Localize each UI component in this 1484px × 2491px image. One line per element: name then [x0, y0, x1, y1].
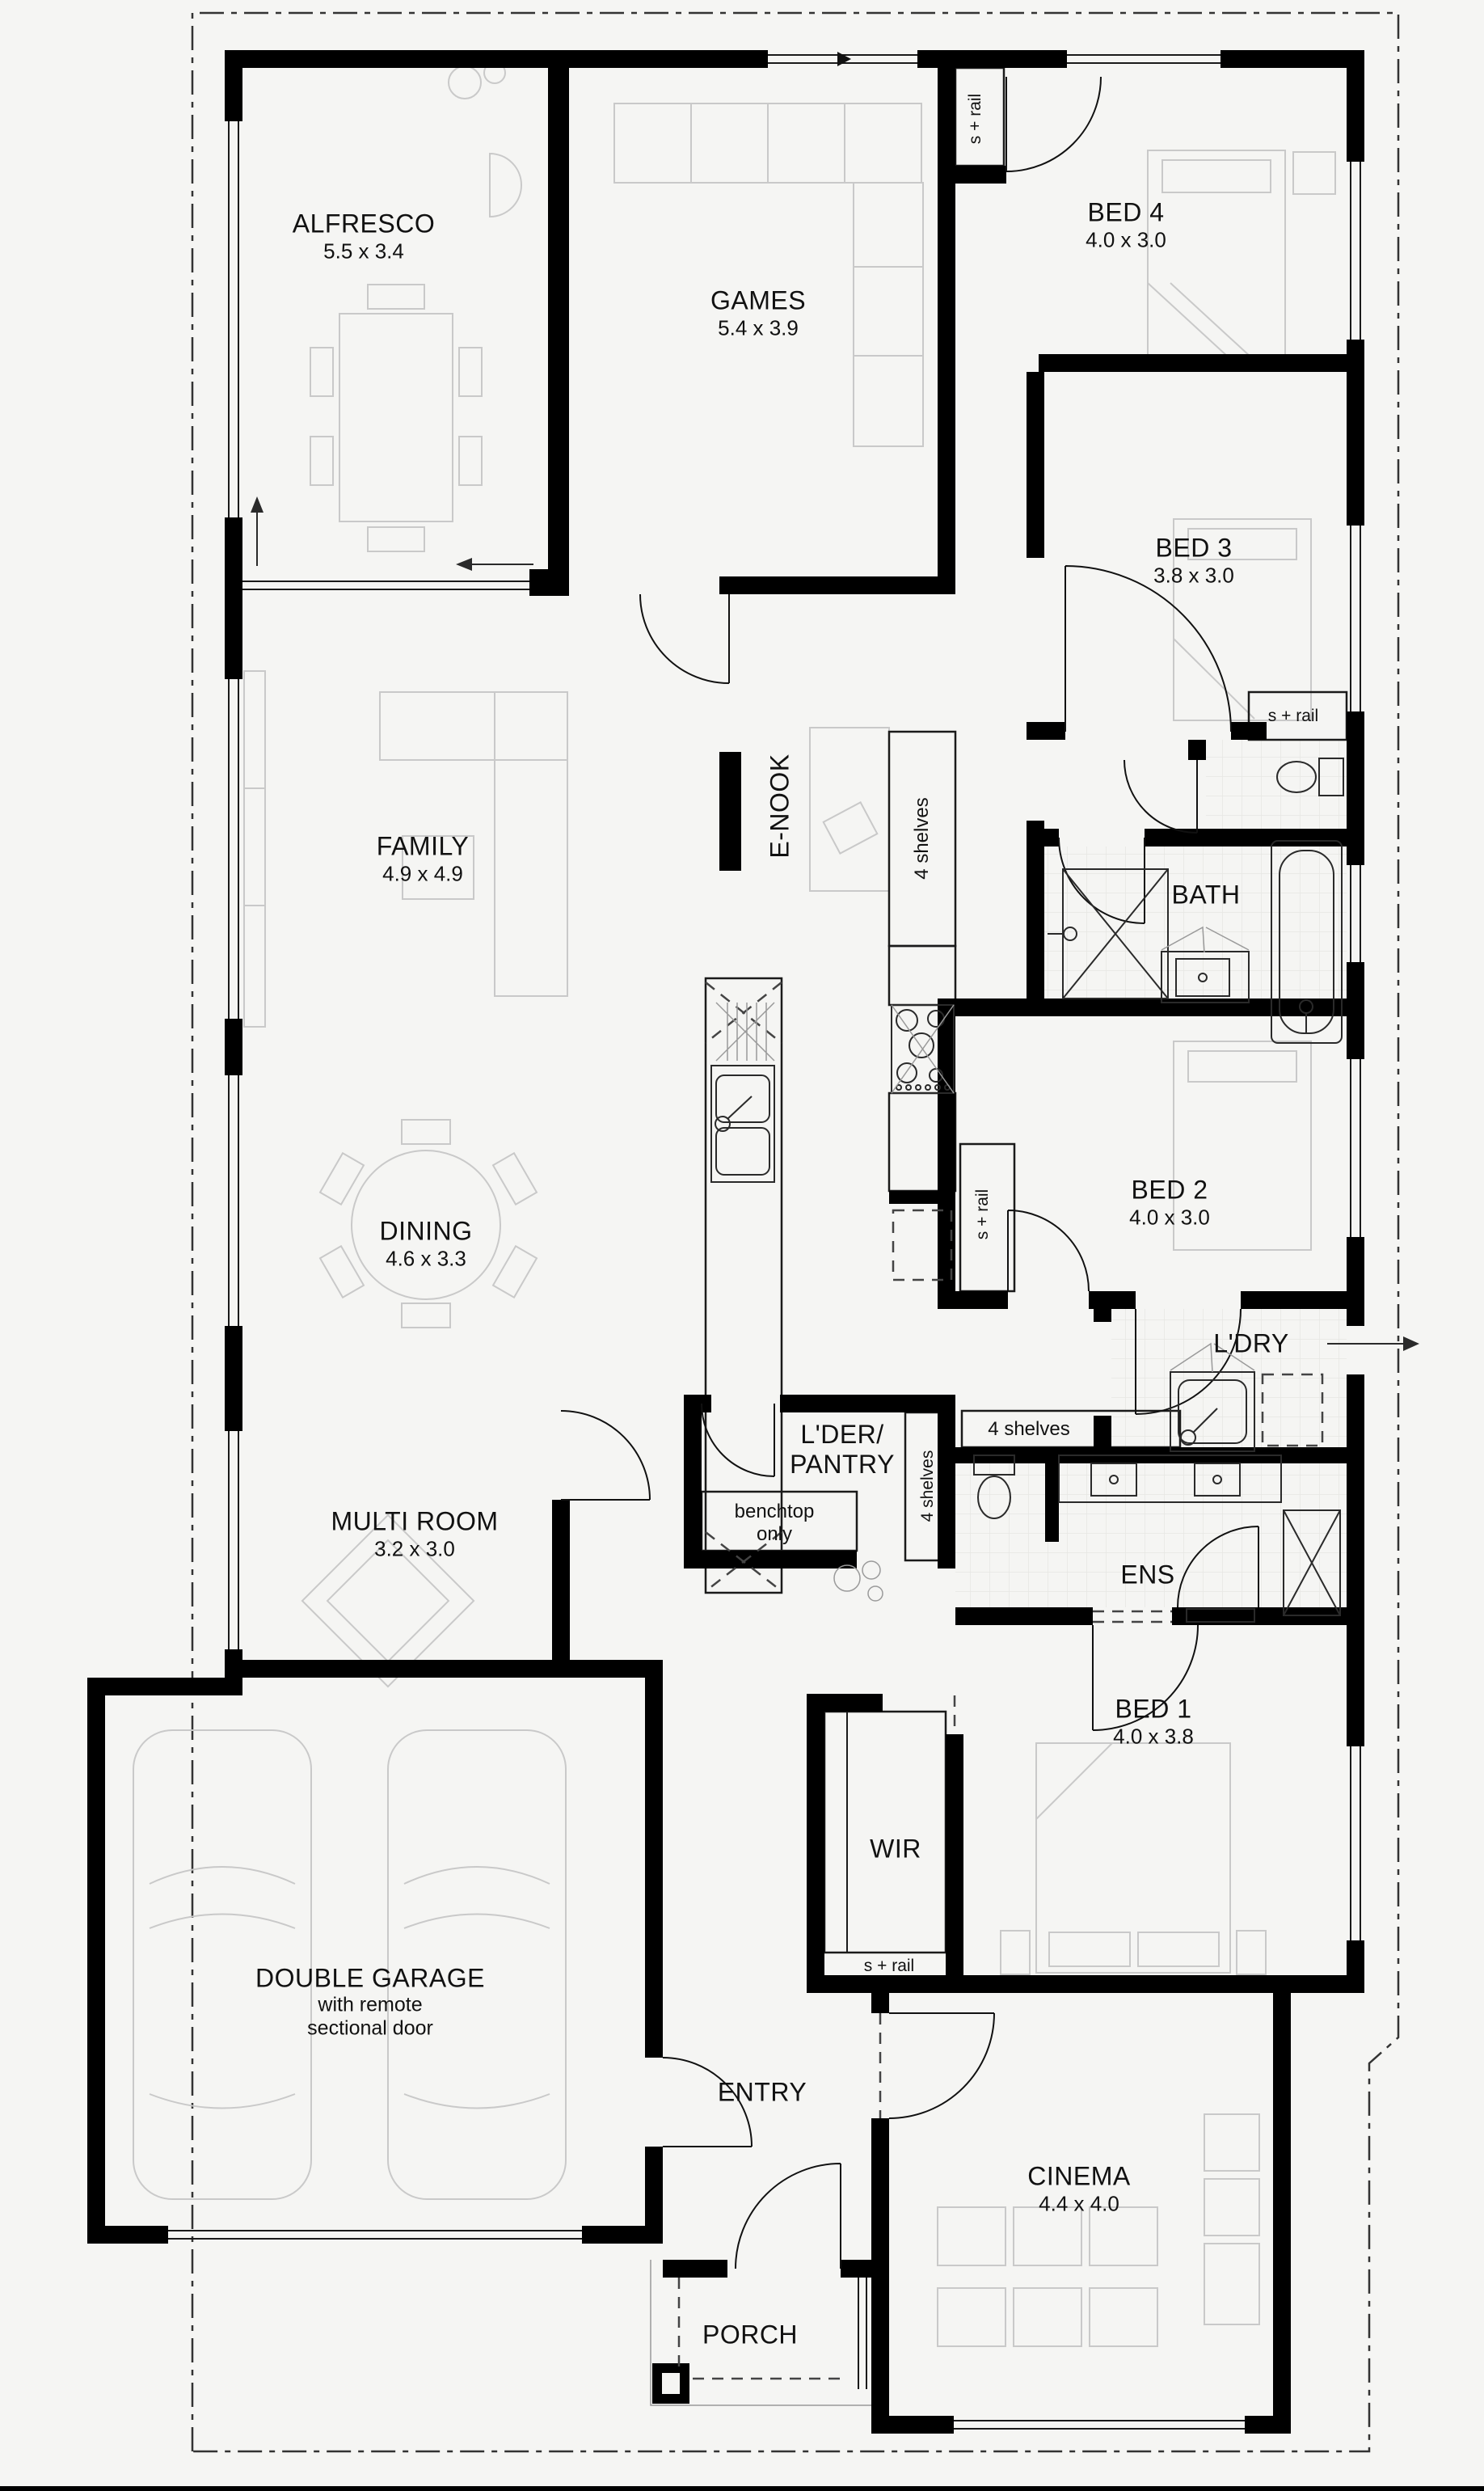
- annotation-bed2-robe: s + rail: [973, 1189, 993, 1239]
- room-label-bath: BATH: [1172, 880, 1241, 910]
- room-name: MULTI ROOM: [331, 1506, 498, 1536]
- annotation-bed4-robe: s + rail: [966, 94, 985, 144]
- room-label-bed1: BED 1 4.0 x 3.8: [1113, 1694, 1194, 1748]
- room-label-family: FAMILY 4.9 x 4.9: [377, 831, 469, 885]
- room-name-line2: PANTRY: [790, 1450, 895, 1480]
- room-label-bed4: BED 4 4.0 x 3.0: [1086, 197, 1166, 251]
- room-label-wir: WIR: [870, 1834, 921, 1864]
- room-name: E-NOOK: [765, 754, 795, 858]
- room-dims: 5.5 x 3.4: [293, 239, 435, 263]
- annotation-bed3-robe: s + rail: [1268, 707, 1318, 726]
- room-name: BED 3: [1153, 533, 1234, 563]
- room-dims: 3.2 x 3.0: [331, 1536, 498, 1560]
- room-label-alfresco: ALFRESCO 5.5 x 3.4: [293, 209, 435, 263]
- room-name: BED 1: [1113, 1694, 1194, 1724]
- annotation-linen-shelves: 4 shelves: [988, 1418, 1069, 1441]
- room-dims: 4.0 x 3.0: [1086, 227, 1166, 251]
- room-name: BED 4: [1086, 197, 1166, 227]
- dashed-lines: [679, 982, 1322, 2379]
- room-note-2: sectional door: [255, 2017, 485, 2041]
- doors: [561, 77, 1258, 2269]
- room-name: BED 2: [1129, 1175, 1210, 1205]
- floor-plan: ALFRESCO 5.5 x 3.4 GAMES 5.4 x 3.9 BED 4…: [0, 0, 1484, 2491]
- room-label-pantry: L'DER/ PANTRY: [790, 1420, 895, 1480]
- room-dims: 3.8 x 3.0: [1153, 563, 1234, 587]
- room-name: DINING: [380, 1216, 473, 1246]
- room-name: WIR: [870, 1834, 921, 1864]
- room-name: ENS: [1120, 1560, 1174, 1590]
- room-label-bed3: BED 3 3.8 x 3.0: [1153, 533, 1234, 587]
- room-dims: 5.4 x 3.9: [710, 315, 806, 340]
- benchtop-line2: only: [735, 1523, 815, 1546]
- room-name: FAMILY: [377, 831, 469, 861]
- annotation-benchtop: benchtop only: [735, 1501, 815, 1546]
- annotation-hall-shelves: 4 shelves: [911, 797, 934, 879]
- annotation-pantry-shelves: 4 shelves: [918, 1450, 938, 1522]
- room-name-line1: L'DER/: [790, 1420, 895, 1450]
- room-name: PORCH: [702, 2320, 798, 2350]
- room-label-bed2: BED 2 4.0 x 3.0: [1129, 1175, 1210, 1229]
- room-label-games: GAMES 5.4 x 3.9: [710, 285, 806, 340]
- room-label-multi: MULTI ROOM 3.2 x 3.0: [331, 1506, 498, 1560]
- room-label-cinema: CINEMA 4.4 x 4.0: [1027, 2161, 1130, 2215]
- room-label-dining: DINING 4.6 x 3.3: [380, 1216, 473, 1270]
- room-name: CINEMA: [1027, 2161, 1130, 2191]
- room-label-entry: ENTRY: [718, 2077, 807, 2107]
- room-dims: 4.0 x 3.8: [1113, 1724, 1194, 1748]
- room-label-enook: E-NOOK: [765, 754, 795, 858]
- room-name: ALFRESCO: [293, 209, 435, 239]
- room-name: L'DRY: [1213, 1328, 1288, 1358]
- room-dims: 4.6 x 3.3: [380, 1246, 473, 1270]
- room-label-porch: PORCH: [702, 2320, 798, 2350]
- windows: [168, 52, 1360, 2429]
- room-label-ens: ENS: [1120, 1560, 1174, 1590]
- room-label-garage: DOUBLE GARAGE with remote sectional door: [255, 1963, 485, 2040]
- room-dims: 4.0 x 3.0: [1129, 1205, 1210, 1229]
- room-label-ldry: L'DRY: [1213, 1328, 1288, 1358]
- joinery: [651, 68, 1347, 2405]
- room-name: DOUBLE GARAGE: [255, 1963, 485, 1993]
- room-dims: 4.4 x 4.0: [1027, 2191, 1130, 2215]
- room-name: ENTRY: [718, 2077, 807, 2107]
- room-name: GAMES: [710, 285, 806, 315]
- room-note-1: with remote: [255, 1994, 485, 2017]
- floor-plan-graphic: [0, 0, 1484, 2491]
- annotation-wir-rail: s + rail: [864, 1957, 914, 1976]
- benchtop-line1: benchtop: [735, 1501, 815, 1523]
- room-name: BATH: [1172, 880, 1241, 910]
- walls: [0, 50, 1484, 2491]
- room-dims: 4.9 x 4.9: [377, 861, 469, 885]
